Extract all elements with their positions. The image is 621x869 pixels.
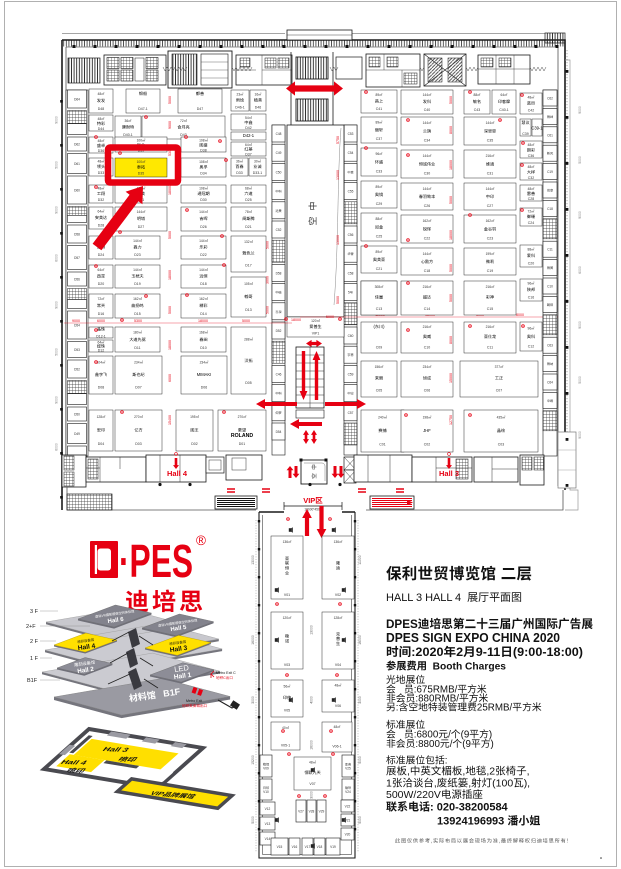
svg-text:华誉: 华誉: [347, 252, 354, 256]
svg-text:朗彩: 朗彩: [527, 148, 535, 153]
svg-text:D03: D03: [135, 442, 141, 446]
svg-text:D35: D35: [138, 172, 144, 176]
svg-text:16000: 16000: [310, 740, 314, 750]
svg-text:D27: D27: [138, 225, 144, 229]
svg-text:晶绘: 晶绘: [497, 428, 505, 433]
svg-text:48㎡: 48㎡: [334, 725, 342, 729]
svg-text:稳诺: 稳诺: [285, 634, 289, 644]
svg-text:C22: C22: [424, 237, 430, 241]
svg-text:翰哥: 翰哥: [244, 294, 252, 299]
svg-text:2+F: 2+F: [26, 624, 36, 630]
svg-text:特彩: 特彩: [97, 121, 105, 126]
svg-text:百春: 百春: [235, 164, 243, 169]
svg-text:D28: D28: [98, 223, 104, 227]
svg-text:162㎡: 162㎡: [486, 219, 496, 223]
svg-text:亚奥: 亚奥: [345, 762, 352, 766]
svg-text:V05-1: V05-1: [281, 744, 290, 748]
svg-text:D47-1: D47-1: [138, 107, 148, 111]
svg-text:C39: C39: [522, 132, 528, 136]
svg-text:D16: D16: [98, 312, 104, 316]
svg-text:C16: C16: [528, 295, 534, 299]
svg-text:195㎡: 195㎡: [190, 415, 200, 419]
svg-text:C53: C53: [348, 132, 354, 136]
svg-text:春羽致丰: 春羽致丰: [419, 194, 435, 199]
svg-text:48㎡: 48㎡: [98, 92, 106, 96]
svg-text:V03: V03: [284, 663, 290, 667]
svg-text:64㎡: 64㎡: [98, 210, 106, 214]
svg-text:D05: D05: [245, 381, 251, 385]
svg-text:C31: C31: [487, 172, 493, 176]
svg-text:朝阳: 朝阳: [547, 303, 553, 307]
svg-text:18000: 18000: [291, 318, 301, 322]
svg-text:3000: 3000: [266, 276, 270, 284]
svg-text:D06: D06: [201, 385, 207, 389]
svg-text:奥威: 奥威: [423, 334, 431, 339]
svg-text:72㎡: 72㎡: [528, 210, 536, 214]
svg-text:D04: D04: [98, 442, 104, 446]
svg-text:D64: D64: [74, 98, 80, 102]
svg-text:V22: V22: [345, 805, 351, 809]
svg-text:9000: 9000: [578, 321, 582, 329]
svg-text:乐彩: 乐彩: [199, 245, 207, 250]
svg-text:彩神: 彩神: [486, 295, 494, 300]
svg-text:48㎡: 48㎡: [309, 761, 317, 765]
svg-text:宏印: 宏印: [97, 427, 105, 432]
svg-text:16㎡: 16㎡: [255, 92, 263, 96]
svg-text:5000: 5000: [358, 756, 362, 764]
svg-text:中意: 中意: [347, 170, 353, 174]
svg-text:C13: C13: [376, 307, 382, 311]
svg-text:(东川): (东川): [374, 324, 386, 329]
svg-text:地铁C出口: 地铁C出口: [216, 675, 233, 680]
svg-text:C21: C21: [376, 267, 382, 271]
svg-text:144㎡: 144㎡: [486, 121, 496, 125]
svg-text:13000: 13000: [336, 235, 340, 245]
svg-text:鑫字飞: 鑫字飞: [95, 372, 107, 377]
svg-text:3 F: 3 F: [30, 609, 39, 615]
svg-text:144㎡: 144㎡: [423, 93, 433, 97]
svg-text:6000: 6000: [55, 443, 59, 451]
svg-text:68㎡: 68㎡: [245, 187, 253, 191]
svg-text:吉晖: 吉晖: [199, 216, 207, 221]
svg-text:C55: C55: [348, 190, 354, 194]
svg-text:D53: D53: [74, 348, 80, 352]
svg-text:56㎡: 56㎡: [284, 684, 292, 688]
svg-text:30㎡: 30㎡: [254, 160, 262, 164]
svg-text:78㎡: 78㎡: [245, 210, 253, 214]
svg-text:435㎡: 435㎡: [497, 415, 507, 419]
svg-text:慧议: 慧议: [521, 120, 529, 125]
svg-text:C05: C05: [376, 389, 382, 393]
svg-text:D33: D33: [98, 171, 104, 175]
svg-text:144㎡: 144㎡: [199, 268, 209, 272]
svg-text:DPES迪培思第二十三届广州国际广告展: DPES迪培思第二十三届广州国际广告展: [386, 617, 593, 631]
svg-text:豪望: 豪望: [238, 427, 246, 432]
svg-text:C50: C50: [276, 170, 282, 174]
svg-text:C24: C24: [528, 221, 534, 225]
svg-text:安美达: 安美达: [95, 215, 107, 220]
svg-text:5号: 5号: [348, 291, 353, 295]
svg-text:古泉: 古泉: [275, 310, 282, 314]
svg-text:深思恩: 深思恩: [484, 128, 496, 133]
svg-text:都善: 都善: [196, 91, 204, 96]
svg-text:15200: 15200: [251, 755, 255, 765]
svg-text:隆迪: 隆迪: [336, 561, 340, 571]
svg-text:汉拓: 汉拓: [244, 358, 252, 363]
svg-text:鑫力: 鑫力: [133, 245, 141, 250]
svg-text:2 F: 2 F: [30, 639, 39, 645]
svg-text:旭成: 旭成: [423, 376, 431, 381]
svg-text:3000: 3000: [251, 696, 255, 704]
svg-text:216㎡: 216㎡: [423, 325, 433, 329]
svg-text:C40-1: C40-1: [499, 108, 509, 112]
svg-text:8000: 8000: [449, 126, 453, 134]
svg-text:D60: D60: [74, 189, 80, 193]
svg-text:克普生: 克普生: [336, 631, 340, 646]
svg-text:参展费用 Booth Charges: 参展费用 Booth Charges: [386, 660, 506, 673]
svg-text:C02: C02: [424, 443, 430, 447]
svg-text:赛捕: 赛捕: [378, 428, 386, 433]
svg-text:发发: 发发: [97, 98, 105, 103]
svg-text:ROLAND: ROLAND: [231, 433, 253, 439]
svg-text:泰拓: 泰拓: [137, 164, 145, 169]
svg-text:C42: C42: [528, 108, 534, 112]
svg-text:奥美亚: 奥美亚: [373, 257, 385, 262]
svg-text:图王: 图王: [190, 427, 198, 432]
svg-text:D17: D17: [245, 264, 251, 268]
svg-text:银船: 银船: [139, 91, 147, 96]
svg-text:18000: 18000: [449, 230, 453, 240]
svg-text:C46: C46: [276, 372, 282, 376]
svg-text:D14: D14: [200, 312, 206, 316]
svg-text:V14: V14: [265, 837, 271, 841]
svg-text:89㎡: 89㎡: [376, 250, 384, 254]
svg-text:闰金: 闰金: [375, 224, 383, 229]
svg-text:奥孚: 奥孚: [199, 164, 207, 169]
svg-text:V18: V18: [317, 845, 323, 849]
svg-text:18000: 18000: [198, 319, 208, 323]
svg-text:5300: 5300: [134, 319, 142, 323]
svg-text:爱普生: 爱普生: [309, 324, 321, 329]
svg-text:11000: 11000: [358, 555, 362, 564]
svg-text:D52: D52: [74, 368, 80, 372]
svg-text:D11: D11: [134, 346, 140, 350]
svg-text:5000: 5000: [168, 96, 172, 104]
svg-text:心励方: 心励方: [421, 259, 433, 264]
svg-text:C11: C11: [487, 345, 493, 349]
svg-text:VIP1: VIP1: [312, 332, 320, 336]
svg-text:C26: C26: [424, 204, 430, 208]
svg-text:136㎡: 136㎡: [334, 540, 344, 544]
svg-text:8000: 8000: [449, 336, 453, 344]
svg-text:6000: 6000: [168, 374, 172, 382]
svg-text:199㎡: 199㎡: [486, 252, 496, 256]
svg-text:C36: C36: [528, 154, 534, 158]
svg-text:C23: C23: [487, 237, 493, 241]
svg-text:JHF: JHF: [423, 428, 431, 433]
svg-text:1张洽谈台,废纸篓,射灯(100瓦),: 1张洽谈台,废纸篓,射灯(100瓦),: [386, 778, 530, 790]
svg-text:72㎡: 72㎡: [98, 297, 106, 301]
svg-text:D48: D48: [98, 107, 104, 111]
svg-text:16000: 16000: [251, 635, 255, 645]
svg-text:C41: C41: [376, 107, 382, 111]
svg-text:5000: 5000: [55, 161, 59, 169]
svg-text:Metro Exit C: Metro Exit C: [216, 671, 236, 675]
svg-text:雅美: 雅美: [547, 266, 554, 270]
svg-text:D18: D18: [200, 282, 206, 286]
svg-text:234㎡: 234㎡: [134, 361, 144, 365]
svg-text:隆琲: 隆琲: [345, 786, 352, 790]
svg-text:48㎡: 48㎡: [98, 160, 106, 164]
svg-text:234㎡: 234㎡: [423, 365, 433, 369]
svg-text:中空: 中空: [347, 392, 353, 396]
svg-text:D32: D32: [98, 198, 104, 202]
svg-text:雅纳: 雅纳: [547, 362, 553, 366]
svg-text:中: 中: [311, 464, 318, 470]
svg-text:C35: C35: [487, 139, 493, 143]
svg-text:另:含空地特装管理费25RMB/平方米: 另:含空地特装管理费25RMB/平方米: [386, 702, 542, 714]
svg-text:96㎡: 96㎡: [376, 152, 384, 156]
svg-text:D40-1: D40-1: [123, 133, 133, 137]
svg-text:5000: 5000: [358, 816, 362, 824]
svg-text:V13: V13: [265, 822, 271, 826]
svg-text:5000: 5000: [449, 96, 453, 104]
svg-text:5000: 5000: [449, 294, 453, 302]
svg-text:来丽: 来丽: [375, 376, 383, 381]
svg-text:144㎡: 144㎡: [199, 210, 209, 214]
svg-text:V16: V16: [292, 845, 298, 849]
svg-text:中鑫: 中鑫: [244, 120, 252, 125]
svg-text:D21: D21: [245, 225, 251, 229]
svg-text:C29: C29: [376, 202, 382, 206]
svg-text:尚意: 尚意: [547, 189, 553, 193]
svg-text:C37: C37: [376, 137, 382, 141]
svg-text:9000: 9000: [55, 301, 59, 309]
svg-text:V25: V25: [345, 767, 351, 771]
svg-text:9000: 9000: [72, 319, 80, 323]
svg-text:105㎡: 105㎡: [244, 282, 254, 286]
svg-text:V19: V19: [330, 845, 336, 849]
svg-text:亿方: 亿方: [134, 427, 142, 432]
svg-text:D46: D46: [255, 105, 261, 109]
svg-text:D34: D34: [200, 172, 206, 176]
svg-text:保利世贸博览馆 二层: 保利世贸博览馆 二层: [386, 565, 532, 583]
svg-text:108㎡: 108㎡: [199, 187, 209, 191]
svg-text:144㎡: 144㎡: [133, 239, 143, 243]
svg-text:9000: 9000: [168, 121, 172, 129]
svg-text:D54: D54: [74, 324, 80, 328]
svg-text:9000: 9000: [578, 431, 582, 439]
svg-text:V28: V28: [309, 810, 315, 814]
svg-text:136㎡: 136㎡: [283, 540, 293, 544]
svg-text:C63: C63: [547, 344, 553, 348]
svg-text:144㎡: 144㎡: [423, 121, 433, 125]
svg-text:稳恒: 稳恒: [263, 762, 270, 766]
svg-text:144㎡: 144㎡: [486, 187, 496, 191]
svg-text:日软: 日软: [263, 786, 270, 790]
svg-text:阕斯腾: 阕斯腾: [242, 216, 254, 221]
svg-text:昌上: 昌上: [375, 99, 383, 104]
svg-text:89㎡: 89㎡: [376, 185, 384, 189]
svg-text:V12: V12: [265, 807, 271, 811]
svg-text:空: 空: [308, 216, 318, 225]
svg-text:C07: C07: [496, 389, 502, 393]
svg-text:大道先驱: 大道先驱: [129, 337, 145, 342]
svg-text:5750: 5750: [336, 136, 340, 144]
svg-text:D44: D44: [98, 127, 104, 131]
svg-text:144㎡: 144㎡: [423, 154, 433, 158]
svg-text:270㎡: 270㎡: [238, 415, 248, 419]
svg-text:168㎡: 168㎡: [199, 330, 209, 334]
svg-text:D01: D01: [239, 442, 245, 446]
svg-text:C39-1: C39-1: [531, 126, 543, 131]
svg-text:C30: C30: [424, 172, 430, 176]
svg-text:89㎡: 89㎡: [376, 121, 384, 125]
svg-text:15000: 15000: [449, 373, 453, 383]
svg-text:植美: 植美: [254, 98, 262, 103]
svg-text:D37: D37: [245, 152, 251, 156]
svg-text:6000: 6000: [578, 266, 582, 274]
svg-text:5000: 5000: [168, 231, 172, 239]
svg-text:96㎡: 96㎡: [528, 326, 536, 330]
svg-text:216㎡: 216㎡: [486, 325, 496, 329]
svg-text:D33: D33: [236, 171, 242, 175]
svg-text:23㎡: 23㎡: [237, 92, 245, 96]
svg-text:V01: V01: [284, 593, 290, 597]
svg-text:100㎡: 100㎡: [137, 160, 147, 164]
svg-text:春田: 春田: [199, 337, 207, 342]
svg-text:D19: D19: [134, 282, 140, 286]
svg-text:V15: V15: [277, 845, 283, 849]
svg-text:88㎡: 88㎡: [376, 217, 384, 221]
svg-text:V17: V17: [305, 845, 311, 849]
svg-text:D42: D42: [245, 126, 251, 130]
svg-text:120㎡: 120㎡: [283, 616, 293, 620]
svg-text:业诚: 业诚: [253, 164, 261, 169]
svg-text:3000: 3000: [310, 791, 314, 799]
svg-text:144㎡: 144㎡: [423, 252, 433, 256]
svg-text:C10: C10: [424, 345, 430, 349]
svg-text:C57: C57: [348, 411, 354, 415]
svg-text:C27: C27: [487, 204, 493, 208]
svg-text:4000: 4000: [310, 696, 314, 704]
svg-text:9000: 9000: [578, 211, 582, 219]
svg-text:六道: 六道: [244, 191, 252, 196]
svg-text:C33: C33: [376, 170, 382, 174]
svg-text:5000: 5000: [266, 306, 270, 314]
svg-text:9000: 9000: [578, 106, 582, 114]
svg-text:VIP区: VIP区: [303, 496, 323, 505]
svg-text:18000: 18000: [168, 340, 172, 350]
svg-text:维通: 维通: [486, 161, 494, 166]
svg-text:C14: C14: [424, 307, 430, 311]
svg-text:敏名: 敏名: [473, 99, 481, 104]
svg-text:64㎡: 64㎡: [98, 268, 106, 272]
svg-text:144㎡: 144㎡: [137, 210, 147, 214]
svg-text:D38: D38: [200, 148, 206, 152]
svg-text:非会员:8800元/个(9平方): 非会员:8800元/个(9平方): [386, 738, 494, 750]
svg-text:B1F: B1F: [27, 678, 38, 684]
svg-text:D46-1: D46-1: [235, 105, 245, 109]
svg-text:V02: V02: [335, 593, 341, 597]
svg-text:270㎡: 270㎡: [134, 415, 144, 419]
svg-text:234㎡: 234㎡: [200, 361, 210, 365]
svg-text:C19: C19: [547, 170, 553, 174]
svg-text:爱科: 爱科: [527, 253, 535, 258]
svg-text:V24: V24: [345, 790, 351, 794]
svg-text:8000: 8000: [516, 313, 524, 317]
svg-text:9000: 9000: [55, 206, 59, 214]
svg-text:斯也纪: 斯也纪: [132, 372, 144, 377]
svg-text:中: 中: [308, 201, 318, 210]
svg-text:锐珲: 锐珲: [423, 226, 431, 231]
svg-text:377㎡: 377㎡: [495, 365, 505, 369]
svg-text:C54: C54: [348, 151, 354, 155]
svg-text:C59: C59: [348, 372, 354, 376]
svg-text:曲扬鸣: 曲扬鸣: [131, 303, 143, 308]
svg-text:C18: C18: [547, 207, 553, 211]
svg-text:36㎡: 36㎡: [236, 160, 244, 164]
svg-text:D07: D07: [135, 385, 141, 389]
svg-text:奥镜: 奥镜: [375, 192, 383, 197]
svg-text:D15: D15: [134, 312, 140, 316]
svg-text:亚仕龙: 亚仕龙: [484, 334, 496, 339]
svg-text:远恒: 远恒: [199, 274, 207, 279]
svg-text:C61: C61: [547, 133, 553, 137]
svg-text:Hall 3: Hall 3: [439, 469, 459, 478]
svg-text:6000: 6000: [55, 254, 59, 262]
svg-text:216㎡: 216㎡: [486, 154, 496, 158]
svg-text:工翔: 工翔: [97, 191, 105, 196]
svg-text:18000: 18000: [449, 160, 453, 170]
svg-text:48㎡: 48㎡: [528, 165, 536, 169]
svg-text:·PES: ·PES: [119, 535, 193, 587]
svg-text:48㎡: 48㎡: [528, 143, 536, 147]
svg-text:中路: 中路: [547, 399, 554, 403]
svg-text:V09: V09: [263, 767, 269, 771]
svg-text:96㎡: 96㎡: [528, 282, 536, 286]
svg-text:72㎡: 72㎡: [180, 119, 188, 123]
svg-text:发科: 发科: [423, 99, 431, 104]
svg-text:5000: 5000: [449, 196, 453, 204]
svg-text:C15: C15: [487, 307, 493, 311]
svg-text:C62: C62: [547, 97, 553, 101]
svg-text:48㎡: 48㎡: [335, 683, 343, 687]
svg-text:亚联恒业: 亚联恒业: [285, 556, 289, 575]
svg-text:宇意: 宇意: [347, 353, 353, 357]
svg-text:V27: V27: [298, 810, 304, 814]
svg-text:HALL 3 HALL 4 展厅平面图: HALL 3 HALL 4 展厅平面图: [386, 592, 522, 604]
svg-text:D12: D12: [98, 348, 104, 352]
svg-text:108㎡: 108㎡: [199, 160, 209, 164]
svg-text:5000: 5000: [251, 816, 255, 824]
svg-text:图盛: 图盛: [199, 142, 207, 147]
svg-text:越达: 越达: [423, 295, 431, 300]
svg-text:12750: 12750: [449, 415, 453, 425]
svg-text:通冠期: 通冠期: [197, 191, 209, 196]
svg-text:兰旗: 兰旗: [423, 128, 431, 133]
svg-text:C03: C03: [498, 443, 504, 447]
svg-text:D56: D56: [74, 278, 80, 282]
svg-text:C58: C58: [348, 271, 354, 275]
svg-text:89㎡: 89㎡: [376, 93, 384, 97]
svg-text:132㎡: 132㎡: [244, 240, 254, 244]
svg-text:5000: 5000: [336, 296, 340, 304]
svg-text:玉桄夫: 玉桄夫: [131, 274, 143, 279]
svg-text:新风: 新风: [547, 152, 554, 156]
svg-text:5000: 5000: [578, 156, 582, 164]
svg-text:144㎡: 144㎡: [423, 187, 433, 191]
